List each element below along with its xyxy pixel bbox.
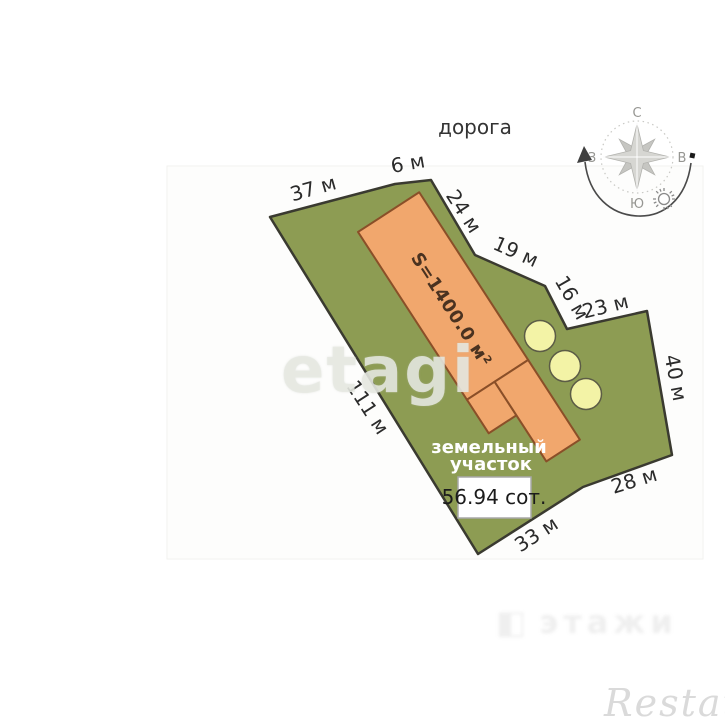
site-plan-canvas: S=1400.0 м² дорога 37 м 6 м 24 м 19 м 16… [0,0,725,725]
parcel-area-box: 56.94 сот. [442,477,547,518]
compass-north-label: С [632,106,641,121]
tree-circle [525,321,556,352]
road-label: дорога [438,115,512,139]
tree-circle [550,351,581,382]
parcel-area-value: 56.94 сот. [442,485,547,509]
site-plan-svg: S=1400.0 м² дорога 37 м 6 м 24 м 19 м 16… [0,0,725,725]
sun-path-start-marker [689,153,695,159]
tree-circle [571,379,602,410]
compass-south-label: Ю [630,197,644,212]
parcel-name-line2: участок [450,454,532,475]
compass-east-label: В [678,151,687,166]
